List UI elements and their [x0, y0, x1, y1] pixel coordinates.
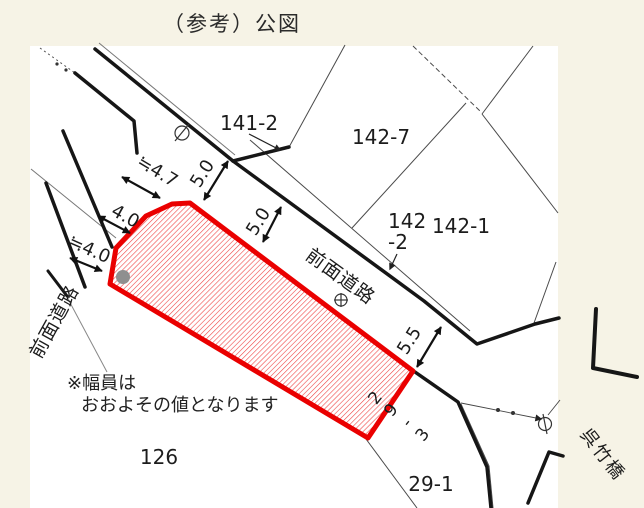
- top-road-lower-edge: [75, 73, 137, 153]
- left-road-right-edge: [63, 131, 112, 247]
- parcel-label-142-7: 142-7: [352, 127, 410, 147]
- dot-top-left-b: [64, 68, 67, 71]
- boundary-142-1-east: [482, 114, 558, 213]
- parcel-label-141-2: 141-2: [220, 113, 278, 133]
- leader-141-2: [249, 134, 280, 150]
- width-note: ※幅員は おおよその値となります: [67, 373, 278, 417]
- survey-point-icon: [539, 414, 552, 434]
- survey-line: [461, 400, 560, 419]
- boundary-top-road-thin: [99, 43, 235, 155]
- boundary-142-1-north-east: [482, 46, 533, 114]
- benchmark-cross-icon: [334, 293, 348, 307]
- parcel-label-29-1: 29-1: [408, 474, 453, 494]
- road-edge-bottom-right: [528, 452, 563, 503]
- boundary-142-1-south-east: [534, 262, 556, 323]
- width-note-line1: ※幅員は: [67, 373, 278, 395]
- parcel-label-142-2-line1: 142: [388, 211, 426, 232]
- parcel-label-142-2: 142 -2: [388, 211, 426, 253]
- parcel-label-126: 126: [140, 447, 178, 467]
- boundary-141-2-142-7: [288, 45, 345, 149]
- width-note-line2: おおよその値となります: [67, 395, 278, 417]
- gray-marker-dot: [116, 270, 130, 284]
- dashed-line-top-left: [40, 48, 75, 73]
- boundary-142-1-north-west: [413, 46, 481, 112]
- utility-pole-icon: [175, 124, 189, 141]
- parcel-label-142-2-line2: -2: [388, 232, 426, 253]
- bridge-bracket: [593, 309, 637, 377]
- cadastral-map-page: （参考）公図: [0, 0, 644, 508]
- dot-top-left-a: [55, 62, 58, 65]
- parcel-label-142-1: 142-1: [432, 216, 490, 236]
